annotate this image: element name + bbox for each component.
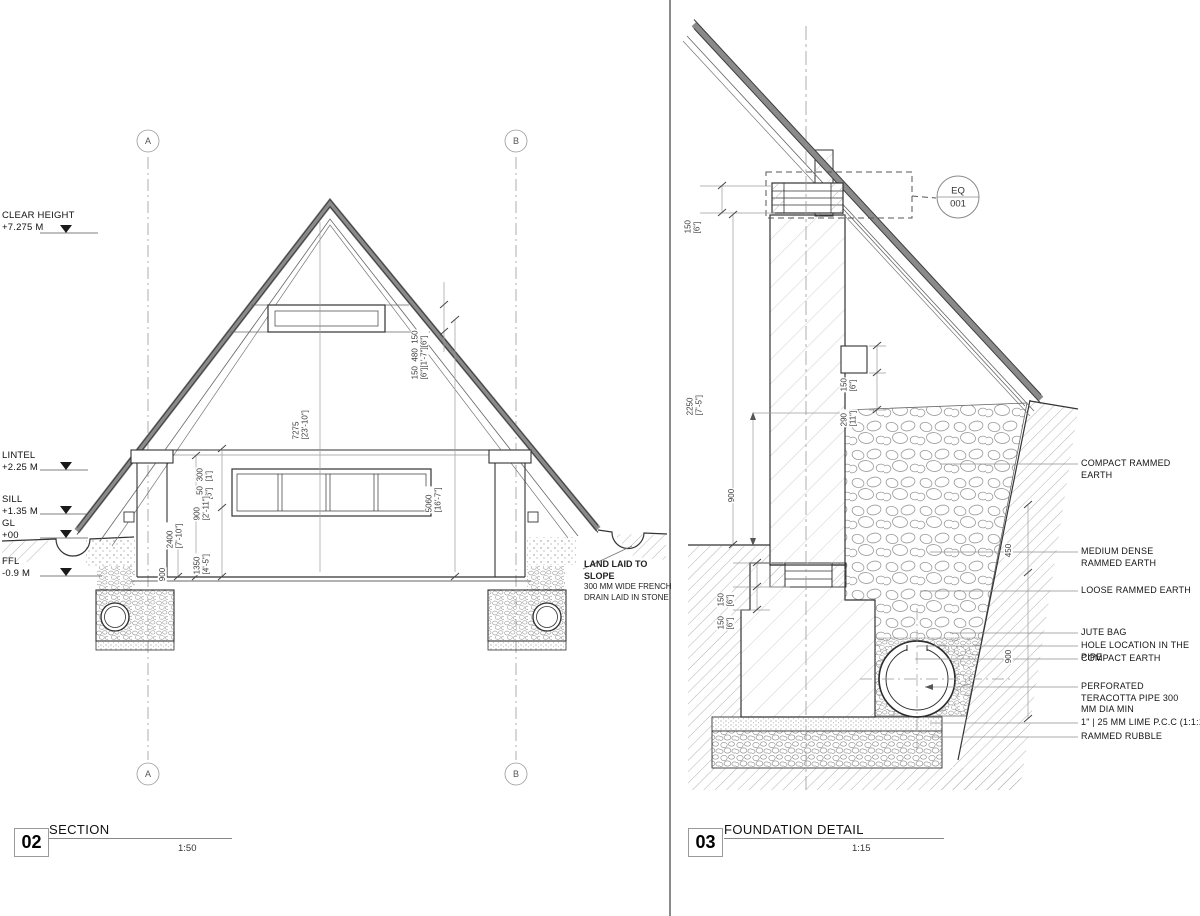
level-markers [40,225,102,576]
linework-svg [0,0,1200,916]
dim-purlin-290: 290[11"] [840,410,858,428]
level-label: GL [2,518,19,530]
dim-band-150-a: 150[6"] [717,592,735,607]
level-label: CLEAR HEIGHT [2,210,75,222]
detail-title-name: FOUNDATION DETAIL [724,822,864,837]
note-line-1: LAND LAID TO SLOPE [584,558,679,582]
grid-lines [137,130,527,785]
level-value: +00 [2,530,19,542]
dim-plate-150: 150[6"] [684,219,702,234]
dim-ridge-vent: 150 480 150[6"][1'-7"][6"] [411,329,429,380]
grid-bubble-b-top: B [513,136,519,146]
eq-callout-bottom: 001 [950,199,966,209]
section-title-number: 02 [14,828,49,857]
label-compact-rammed-earth: COMPACT RAMMED EARTH [1081,458,1173,481]
grid-bubble-a-top: A [145,136,151,146]
dim-band-150-b: 150[6"] [717,615,735,630]
drawing-sheet: A B A B CLEAR HEIGHT +7.275 M LINTEL +2.… [0,0,1200,916]
section-title-rule [49,838,232,839]
detail-title-scale: 1:15 [852,843,871,854]
dim-wall-2250: 2250[7'-5"] [686,394,704,416]
dim-window-900: 900[2'-11"] [193,495,211,521]
label-medium-dense-rammed-earth: MEDIUM DENSE RAMMED EARTH [1081,546,1189,569]
level-lintel: LINTEL +2.25 M [2,450,38,473]
label-loose-rammed-earth: LOOSE RAMMED EARTH [1081,585,1200,597]
eq-callout [912,176,979,218]
floor-slab [131,577,531,581]
grid-bubble-a-bottom: A [145,769,151,779]
level-value: -0.9 M [2,568,30,580]
dim-purlin-150: 150[6"] [840,377,858,392]
level-label: SILL [2,494,38,506]
detail-title-number: 03 [688,828,723,857]
ceiling [139,450,521,455]
grid-bubble-b-bottom: B [513,769,519,779]
dim-layer-450: 450 [1004,543,1013,558]
eq-callout-top: EQ [951,186,965,196]
level-ffl: FFL -0.9 M [2,556,30,579]
label-rammed-rubble: RAMMED RUBBLE [1081,731,1200,743]
level-sill: SILL +1.35 M [2,494,38,517]
section-title-name: SECTION [49,822,110,837]
rubble-band [712,731,942,768]
dim-layer-900: 900 [1004,649,1013,664]
dim-roof-span: 5060[16'-7"] [425,487,443,514]
section-dim-lines [178,222,455,576]
section-drawing [2,130,667,785]
lime-pcc-band [712,717,942,731]
dim-sill-1350: 1350[4'-5"] [193,553,211,575]
dim-ridge-height: 7275[23'-10"] [292,409,310,440]
footing-left [96,590,174,650]
dim-foundation-900: 900 [158,567,167,582]
detail-drawing [683,20,1078,793]
label-lime-pcc: 1" | 25 MM LIME P.C.C (1:1:1) [1081,717,1200,729]
section-title-scale: 1:50 [178,843,197,854]
plinth-band [770,563,846,587]
level-gl: GL +00 [2,518,19,541]
label-perforated-pipe: PERFORATED TERACOTTA PIPE 300 MM DIA MIN [1081,681,1189,716]
note-line-3: DRAIN LAID IN STONE [584,593,679,604]
level-clear-height: CLEAR HEIGHT +7.275 M [2,210,75,233]
note-line-2: 300 MM WIDE FRENCH [584,582,679,593]
purlin [841,346,867,373]
label-jute-bag: JUTE BAG [1081,627,1200,639]
dim-wall-2400: 2400[7'-10"] [166,523,184,550]
footing-right [488,590,566,650]
level-value: +1.35 M [2,506,38,518]
french-drain-note: LAND LAID TO SLOPE 300 MM WIDE FRENCH DR… [584,558,679,604]
dim-band-300: 300[1'] [196,467,214,482]
detail-title-rule [724,838,944,839]
dim-found-900: 900 [727,488,736,503]
level-label: FFL [2,556,30,568]
level-value: +2.25 M [2,462,38,474]
label-compact-earth: COMPACT EARTH [1081,653,1200,665]
window [232,469,431,516]
panel-divider [669,0,671,916]
level-label: LINTEL [2,450,38,462]
level-value: +7.275 M [2,222,75,234]
